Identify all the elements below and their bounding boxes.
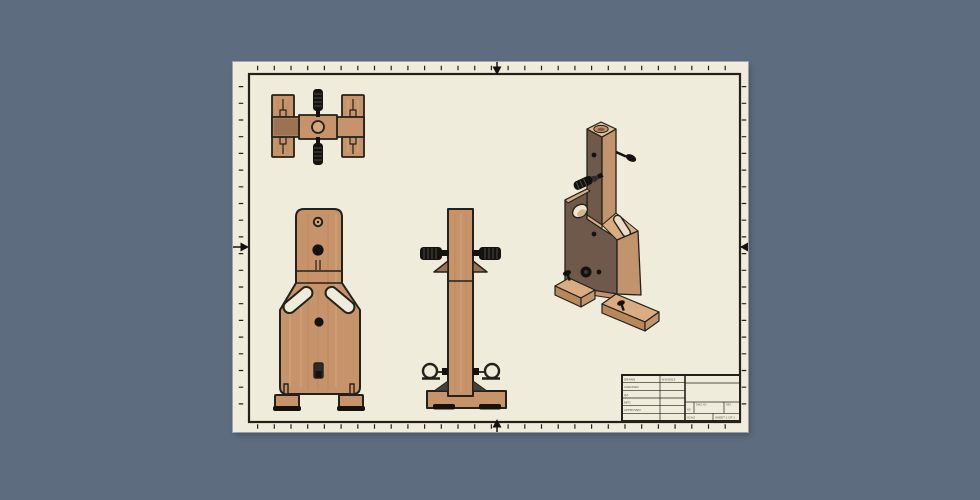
titleblock-scale-label: SCALE <box>687 417 696 420</box>
front-view-bottom-slot-dark <box>316 371 322 378</box>
top-view[interactable] <box>272 89 364 165</box>
iso-right-screw <box>616 152 637 164</box>
titleblock-mfg-label: MFG <box>624 401 631 405</box>
front-view[interactable] <box>273 209 365 411</box>
side-view-right-gusset <box>473 261 487 272</box>
titleblock-dwgno-label: DWG NO <box>696 403 707 406</box>
titleblock-date-value: 8/16/2013 <box>662 378 676 382</box>
side-view[interactable] <box>420 209 506 410</box>
iso-top-boss-hole <box>597 128 604 132</box>
side-view-base-left-gusset <box>434 381 448 391</box>
iso-right-rail <box>602 294 659 331</box>
iso-column-hole-1 <box>592 153 597 158</box>
front-view-left-tab <box>284 384 288 394</box>
drawing-sheet-svg: DRAWN 8/16/2013 CHECKED QA MFG APPROVED … <box>233 62 748 432</box>
titleblock-qa-label: QA <box>624 393 628 397</box>
side-view-base-right-gusset <box>473 381 487 391</box>
side-view-right-pad <box>479 404 501 410</box>
titleblock-checked-label: CHECKED <box>624 385 640 389</box>
top-view-bar-dark-segment <box>274 119 300 136</box>
top-view-center-hole <box>312 121 324 133</box>
side-view-left-pad <box>433 404 455 410</box>
cad-canvas: DRAWN 8/16/2013 CHECKED QA MFG APPROVED … <box>0 0 980 500</box>
center-mark-right <box>740 243 748 252</box>
front-view-right-foot-pad <box>337 406 365 411</box>
side-view-left-hook-pin <box>442 368 448 375</box>
side-view-right-knob <box>472 247 501 260</box>
side-view-right-hook-pin <box>473 368 479 375</box>
titleblock-sheet-value: SHEET 1 OF 1 <box>715 416 735 420</box>
side-view-left-knob <box>420 247 449 260</box>
front-view-left-foot-pad <box>273 406 301 411</box>
front-view-right-tab <box>350 384 354 394</box>
top-view-lower-knob <box>313 137 323 165</box>
iso-plate-hole-1 <box>592 232 597 237</box>
iso-plate-hole-2 <box>597 270 602 275</box>
title-block[interactable]: DRAWN 8/16/2013 CHECKED QA MFG APPROVED … <box>622 375 740 421</box>
front-view-left-foot <box>275 395 299 407</box>
top-view-upper-knob <box>313 89 323 117</box>
side-view-left-gusset <box>434 261 448 272</box>
front-view-upper-hole-center <box>317 221 319 223</box>
front-view-center-hole <box>314 317 323 326</box>
titleblock-approved-label: APPROVED <box>624 408 642 412</box>
iso-round-knob-center <box>584 270 588 274</box>
titleblock-size-value: A2 <box>687 408 691 412</box>
center-mark-left <box>233 243 249 252</box>
drawing-sheet[interactable]: DRAWN 8/16/2013 CHECKED QA MFG APPROVED … <box>233 62 748 432</box>
isometric-view[interactable] <box>555 122 659 331</box>
titleblock-rev-label: REV <box>726 403 731 406</box>
iso-plate-right-face <box>617 231 641 295</box>
front-view-bolt-hole <box>312 244 323 255</box>
front-view-right-foot <box>339 395 363 407</box>
titleblock-drawn-label: DRAWN <box>624 378 635 382</box>
